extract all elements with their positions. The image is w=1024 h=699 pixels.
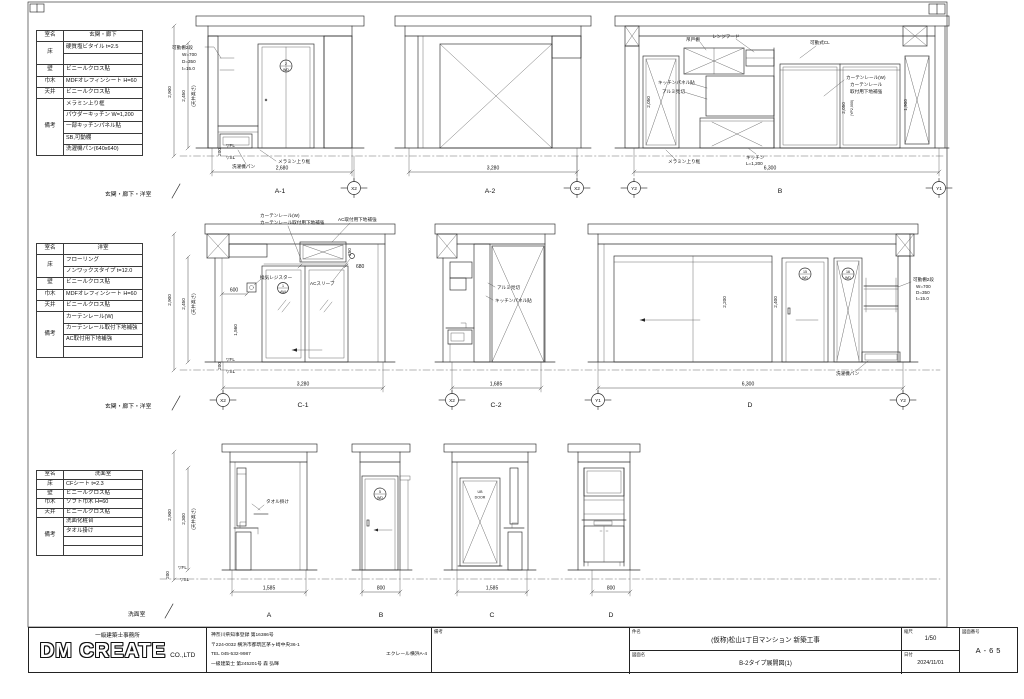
c1-dim-680: 680 bbox=[356, 264, 365, 270]
s1-ceiling-label: 天井 bbox=[37, 87, 64, 98]
b-tsuridana-label: 吊戸棚 bbox=[686, 36, 700, 43]
s2-room-label: 室名 bbox=[37, 244, 64, 255]
elevation-c2: アルミ見切 キッチンパネル貼 1,685 C-2 X2 bbox=[435, 224, 555, 410]
b-label: B bbox=[778, 188, 783, 195]
b-kitchen-panel-label: キッチンパネル貼 bbox=[658, 79, 695, 86]
s3-note3 bbox=[64, 536, 143, 545]
c3-label: C bbox=[490, 612, 495, 619]
d-shelf-note-3: D=350 bbox=[916, 290, 930, 295]
d3-width-dim: 800 bbox=[607, 586, 616, 592]
row3-dim-ceiling: 2,300 bbox=[181, 513, 186, 525]
c1-label: C-1 bbox=[298, 402, 309, 409]
row3-dim-ceiling-note: (天井高さ) bbox=[190, 508, 197, 530]
s2-ceiling: ビニールクロス貼 bbox=[64, 300, 143, 311]
elevation-d2: 2,200 2,400 15 WD 16 WD bbox=[585, 224, 934, 410]
s2-base-label: 巾木 bbox=[37, 289, 64, 300]
s2-note4 bbox=[64, 346, 143, 357]
entrance-door: 2 WD bbox=[258, 44, 314, 148]
s1-floor2 bbox=[64, 53, 143, 64]
d-shelves bbox=[864, 278, 898, 312]
registration: 神奈川県知事登録 第16386号 bbox=[211, 631, 427, 641]
ub-door-text1: UB bbox=[478, 490, 484, 494]
c1-ac-label: AC取付用下地補強 bbox=[338, 216, 377, 223]
company-logo: DM CREATECO.,LTD bbox=[29, 640, 206, 663]
ub-door: UB DOOR bbox=[458, 478, 502, 566]
a1-width-dim: 2,680 bbox=[276, 166, 289, 172]
s3-note2: タオル掛け bbox=[64, 527, 143, 536]
c1-window-number: 1 bbox=[282, 284, 284, 288]
d-door2-type: WD bbox=[845, 276, 851, 280]
s1-base-label: 巾木 bbox=[37, 76, 64, 87]
company-name: DM CREATE bbox=[40, 640, 166, 662]
d-width-dim: 6,300 bbox=[742, 382, 755, 388]
s3-floor-label: 床 bbox=[37, 480, 64, 489]
c2-width-dim: 1,685 bbox=[490, 382, 503, 388]
s2-floor-label: 床 bbox=[37, 255, 64, 278]
spec-table-senmen: 室名洗面室 床CFシート t=2.3 壁ビニールクロス貼 巾木ソフト巾木 H=6… bbox=[36, 470, 143, 556]
b-curtain3-label: 取付用下地補強 bbox=[850, 88, 883, 95]
grid-bubble-x2-c2: X2 bbox=[439, 391, 465, 410]
s2-note2: カーテンレール取付下地補強 bbox=[64, 323, 143, 334]
s2-floor2: ノンワックスタイプ t=12.0 bbox=[64, 266, 143, 277]
row2-dim-base: 200 bbox=[217, 362, 222, 370]
c1-width-dim: 3,280 bbox=[297, 382, 310, 388]
s1-wall-label: 壁 bbox=[37, 65, 64, 76]
c2-mikiri-label: アルミ見切 bbox=[497, 284, 520, 291]
d-door1-type: WD bbox=[802, 276, 808, 280]
row3-fl-label: ▽FL bbox=[178, 565, 187, 570]
b-kitchen bbox=[684, 48, 774, 148]
grid-bubble-x2-c1: X2 bbox=[210, 391, 236, 410]
company-suffix: CO.,LTD bbox=[170, 652, 195, 659]
b-kitchen-length-label: L=1,200 bbox=[746, 161, 763, 166]
c1-register-label: 換気レジスター bbox=[260, 274, 293, 281]
s2-wall: ビニールクロス貼 bbox=[64, 278, 143, 289]
shelf-note-2: W=700 bbox=[182, 52, 197, 57]
a2-grid-label: X2 bbox=[574, 186, 580, 192]
row1: 2,900 2,450 (天井高さ) 200 ▽FL ▽SL 玄関・廊下・洋室 … bbox=[105, 16, 952, 198]
c1-curtain1-label: カーテンレール(W) bbox=[260, 213, 300, 219]
drawing-sheet: 2,900 2,450 (天井高さ) 200 ▽FL ▽SL 玄関・廊下・洋室 … bbox=[0, 0, 1024, 699]
row1-dim-ceiling: 2,450 bbox=[181, 90, 186, 102]
grid-bubble-y1-b: Y1 bbox=[926, 179, 952, 198]
d-shelf-note-4: t=15.0 bbox=[916, 296, 929, 301]
telephone: TEL 045-532-9987 bbox=[211, 650, 251, 660]
b-win-dim2: (YP2,000) bbox=[850, 100, 854, 116]
d-grid-left-label: Y1 bbox=[595, 398, 601, 404]
elevation-a3: タオル掛け 1,585 A bbox=[222, 444, 317, 619]
drawing-name-cell: 図面名 B-2タイプ展開図(1) bbox=[629, 651, 901, 674]
s3-base: ソフト巾木 H=60 bbox=[64, 499, 143, 508]
row3: 2,900 2,300 (天井高さ) 200 ▽FL ▽SL 洗面室 bbox=[128, 444, 940, 619]
a2-label: A-2 bbox=[485, 188, 496, 195]
c1-window-type: AW bbox=[280, 290, 286, 294]
s1-floor-label: 床 bbox=[37, 42, 64, 65]
s3-note4 bbox=[64, 546, 143, 555]
office-type: 一級建築士事務所 bbox=[29, 631, 206, 639]
d-door2-number: 16 bbox=[846, 270, 850, 274]
elevation-c1: 250 680 ACスリーブ 換気レジスター 600 bbox=[205, 213, 395, 410]
d2-label: D bbox=[748, 402, 753, 409]
s2-ceiling-label: 天井 bbox=[37, 300, 64, 311]
s1-note-label: 備考 bbox=[37, 99, 64, 156]
s1-note4: SB,可動棚 bbox=[64, 133, 143, 144]
s3-wall-label: 壁 bbox=[37, 489, 64, 498]
s2-floor1: フローリング bbox=[64, 255, 143, 266]
shelf-note-3: D=350 bbox=[182, 59, 196, 64]
a1-washer-pan-label: 洗濯機パン bbox=[232, 163, 256, 170]
c2-sink bbox=[448, 330, 472, 344]
b-door-height-dim: 2,050 bbox=[646, 96, 651, 108]
s2-note-label: 備考 bbox=[37, 312, 64, 358]
row1-dim-total: 2,900 bbox=[167, 86, 172, 98]
drawing-name: B-2タイプ展開図(1) bbox=[630, 651, 901, 674]
c1-curtain2-label: カーテンレール取付用下地補強 bbox=[260, 219, 325, 226]
s3-note1: 洗面化粧台 bbox=[64, 517, 143, 526]
d-closet-panel bbox=[614, 256, 772, 362]
row2: 2,900 2,450 (天井高さ) 200 ▽FL ▽SL 玄関・廊下・洋室 bbox=[105, 213, 940, 410]
a1-grid-label: X2 bbox=[351, 186, 357, 192]
s1-floor1: 硬質塩ビタイル t=2.5 bbox=[64, 42, 143, 53]
s3-note-label: 備考 bbox=[37, 517, 64, 555]
s2-note1: カーテンレール(W) bbox=[64, 312, 143, 323]
a1-label: A-1 bbox=[275, 188, 286, 195]
s1-wall: ビニールクロス貼 bbox=[64, 65, 143, 76]
row2-fl-label: ▽FL bbox=[226, 357, 235, 362]
b-movable-cl-label: 可動式CL bbox=[810, 39, 830, 46]
b-grid-right-label: Y1 bbox=[936, 186, 942, 192]
shelf-note-1: 可動棚2段 bbox=[172, 44, 193, 51]
s1-note2: パウダーキッチン W=1,200 bbox=[64, 110, 143, 121]
b3-width-dim: 800 bbox=[377, 586, 386, 592]
c3-vanity-profile bbox=[504, 523, 524, 570]
d-grid-right-label: Y2 bbox=[900, 398, 906, 404]
b-kitchen-label: キッチン bbox=[746, 155, 765, 160]
s1-note5: 洗濯機パン(640x640) bbox=[64, 144, 143, 155]
b-rangehood-label: レンジフード bbox=[712, 34, 740, 39]
a1-door-type: WD bbox=[283, 68, 289, 72]
company-cell: 一級建築士事務所 DM CREATECO.,LTD bbox=[29, 628, 206, 672]
d-door1-number: 15 bbox=[803, 270, 807, 274]
s3-ceiling-label: 天井 bbox=[37, 508, 64, 517]
row1-section-label: 玄関・廊下・洋室 bbox=[105, 190, 152, 198]
shelf-note-4: t=15.0 bbox=[182, 66, 195, 71]
c2-panel-label: キッチンパネル貼 bbox=[495, 297, 532, 304]
address: 〒224-0032 横浜市都筑区茅ヶ崎中央36-1 bbox=[211, 641, 427, 651]
license-cell: 神奈川県知事登録 第16386号 〒224-0032 横浜市都筑区茅ヶ崎中央36… bbox=[206, 628, 431, 672]
spec-table-genkan: 室名玄関・廊下 床硬質塩ビタイル t=2.5 壁ビニールクロス貼 巾木MDFオレ… bbox=[36, 30, 143, 156]
c2-grid-label: X2 bbox=[449, 398, 455, 404]
elevation-drawings: 2,900 2,450 (天井高さ) 200 ▽FL ▽SL 玄関・廊下・洋室 … bbox=[0, 0, 1024, 628]
c1-height-dim: 1,560 bbox=[233, 324, 238, 336]
remarks-cell: 備考 bbox=[431, 628, 629, 672]
a3-towel-label: タオル掛け bbox=[266, 498, 289, 505]
s3-room: 洗面室 bbox=[64, 471, 143, 480]
d-dim-2400: 2,400 bbox=[773, 296, 778, 308]
corner-mark-top-right bbox=[929, 4, 945, 14]
elevation-d3: 800 D bbox=[568, 444, 640, 619]
b-win-dim3: 1,900 bbox=[903, 99, 908, 111]
s1-base: MDFオレフィンシート H=60 bbox=[64, 76, 143, 87]
d-door1: 15 WD bbox=[782, 258, 828, 362]
elevation-c3: UB DOOR 1,585 C bbox=[444, 444, 536, 619]
c1-ac-sleeve-label: ACスリーブ bbox=[310, 280, 335, 286]
row3-dim-base: 200 bbox=[165, 571, 170, 579]
date-value: 2024/11/01 bbox=[902, 651, 959, 674]
a3-label: A bbox=[267, 612, 272, 619]
row1-dim-ceiling-note: (天井高さ) bbox=[190, 85, 197, 107]
b3-label: B bbox=[379, 612, 384, 619]
b-grid-left-label: Y2 bbox=[631, 186, 637, 192]
b-width-dim: 6,300 bbox=[764, 166, 777, 172]
grid-bubble-y1-d: Y1 bbox=[585, 391, 611, 410]
row3-section-label: 洗面室 bbox=[128, 610, 146, 618]
s3-ceiling: ビニールクロス貼 bbox=[64, 508, 143, 517]
a1-door-number: 2 bbox=[285, 62, 287, 66]
a3-vanity-profile bbox=[234, 522, 258, 570]
grid-bubble-y2-b: Y2 bbox=[621, 179, 647, 198]
c1-grid-label: X2 bbox=[220, 398, 226, 404]
b3-door-number: 5 bbox=[379, 490, 381, 494]
d-shelf-note-1: 可動棚2段 bbox=[913, 276, 934, 283]
vanity-unit bbox=[582, 468, 626, 566]
spec-table-yoshitsu: 室名洋室 床フローリング ノンワックスタイプ t=12.0 壁ビニールクロス貼 … bbox=[36, 243, 143, 358]
elevation-a1: 2 WD 洗濯機パン メラミン上り框 2,680 A-1 bbox=[196, 16, 367, 198]
s3-wall: ビニールクロス貼 bbox=[64, 489, 143, 498]
grid-bubble-x2-a1: X2 bbox=[341, 156, 367, 198]
elevation-b: 2,050 吊戸棚 レンジフード キッチンパネル貼 アルミ見切 メラミン上り bbox=[615, 16, 952, 198]
d-washer-pan bbox=[862, 352, 900, 362]
b-curtain2-label: カーテンレール bbox=[850, 82, 883, 88]
s2-base: MDFオレフィンシート H=60 bbox=[64, 289, 143, 300]
scale-value: 1/50 bbox=[902, 628, 959, 650]
s3-room-label: 室名 bbox=[37, 471, 64, 480]
s2-wall-label: 壁 bbox=[37, 278, 64, 289]
row3-sl-label: ▽SL bbox=[180, 577, 190, 582]
s3-base-label: 巾木 bbox=[37, 499, 64, 508]
title-block: 一級建築士事務所 DM CREATECO.,LTD 神奈川県知事登録 第1638… bbox=[28, 627, 1018, 673]
b-agarikamachi-label: メラミン上り框 bbox=[668, 158, 701, 165]
c1-dim-600: 600 bbox=[230, 288, 239, 294]
c1-dim-250: 250 bbox=[347, 248, 352, 256]
scale-cell: 縮尺 1/50 bbox=[901, 628, 959, 651]
b-alumi-mikiri-label: アルミ見切 bbox=[662, 88, 685, 95]
s1-room-label: 室名 bbox=[37, 31, 64, 42]
drawing-number-cell: 図面番号 A-65 bbox=[959, 628, 1019, 672]
row1-dim-base: 200 bbox=[217, 148, 222, 156]
architect: 一級建築士 第245201号 森 弘暉 bbox=[211, 660, 427, 670]
project-name: (仮称)松山1丁目マンション 新築工事 bbox=[630, 628, 901, 650]
s2-note3: AC取付用下地補強 bbox=[64, 335, 143, 346]
date-cell: 日付 2024/11/01 bbox=[901, 651, 959, 674]
grid-bubble-x2-a2: X2 bbox=[564, 156, 590, 198]
grid-bubble-y2-d: Y2 bbox=[890, 391, 916, 410]
a3-width-dim: 1,585 bbox=[263, 586, 276, 592]
s1-note1: メラミン上り框 bbox=[64, 99, 143, 110]
s1-ceiling: ビニールクロス貼 bbox=[64, 87, 143, 98]
b3-door: 5 WD bbox=[362, 476, 398, 570]
s1-note3: 一部キッチンパネル貼 bbox=[64, 122, 143, 133]
towel-bar bbox=[252, 504, 268, 514]
row2-dim-ceiling-note: (天井高さ) bbox=[190, 293, 197, 315]
row2-section-label: 玄関・廊下・洋室 bbox=[105, 402, 152, 410]
ac-backing-box bbox=[300, 242, 346, 262]
building-name: エクレール横浜A-4 bbox=[386, 650, 427, 660]
elevation-b3: 5 WD 800 B bbox=[352, 444, 412, 619]
corner-mark-top-left bbox=[30, 4, 44, 12]
row1-shelf-note: 可動棚2段 W=700 D=350 t=15.0 bbox=[172, 44, 221, 71]
b-curtain1-label: カーテンレール(W) bbox=[846, 75, 886, 81]
row2-dim-ceiling: 2,450 bbox=[181, 298, 186, 310]
a2-width-dim: 3,280 bbox=[487, 166, 500, 172]
elevation-a2: 3,280 A-2 X2 bbox=[395, 16, 591, 198]
d-door2: 16 WD bbox=[834, 258, 862, 362]
d3-label: D bbox=[609, 612, 614, 619]
c3-width-dim: 1,585 bbox=[486, 586, 499, 592]
a1-agarikamachi-label: メラミン上り框 bbox=[278, 158, 311, 165]
row3-dim-total: 2,900 bbox=[167, 509, 172, 521]
s2-room: 洋室 bbox=[64, 244, 143, 255]
b3-door-type: WD bbox=[377, 496, 383, 500]
c2-label: C-2 bbox=[491, 402, 502, 409]
b-win-dim1: 2,050 bbox=[841, 102, 846, 114]
s3-floor1: CFシート t=2.3 bbox=[64, 480, 143, 489]
remarks-label: 備考 bbox=[434, 629, 443, 635]
s1-room: 玄関・廊下 bbox=[64, 31, 143, 42]
drawing-number: A-65 bbox=[960, 628, 1019, 672]
washer-pan bbox=[220, 134, 252, 148]
ub-door-text2: DOOR bbox=[475, 496, 486, 500]
project-cell: 件名 (仮称)松山1丁目マンション 新築工事 bbox=[629, 628, 901, 651]
d-shelf-note-2: W=700 bbox=[916, 284, 931, 289]
row1-fl-label: ▽FL bbox=[226, 143, 235, 148]
sheet-border bbox=[28, 2, 947, 627]
row2-dim-total: 2,900 bbox=[167, 294, 172, 306]
d-dim-2200: 2,200 bbox=[722, 296, 727, 308]
